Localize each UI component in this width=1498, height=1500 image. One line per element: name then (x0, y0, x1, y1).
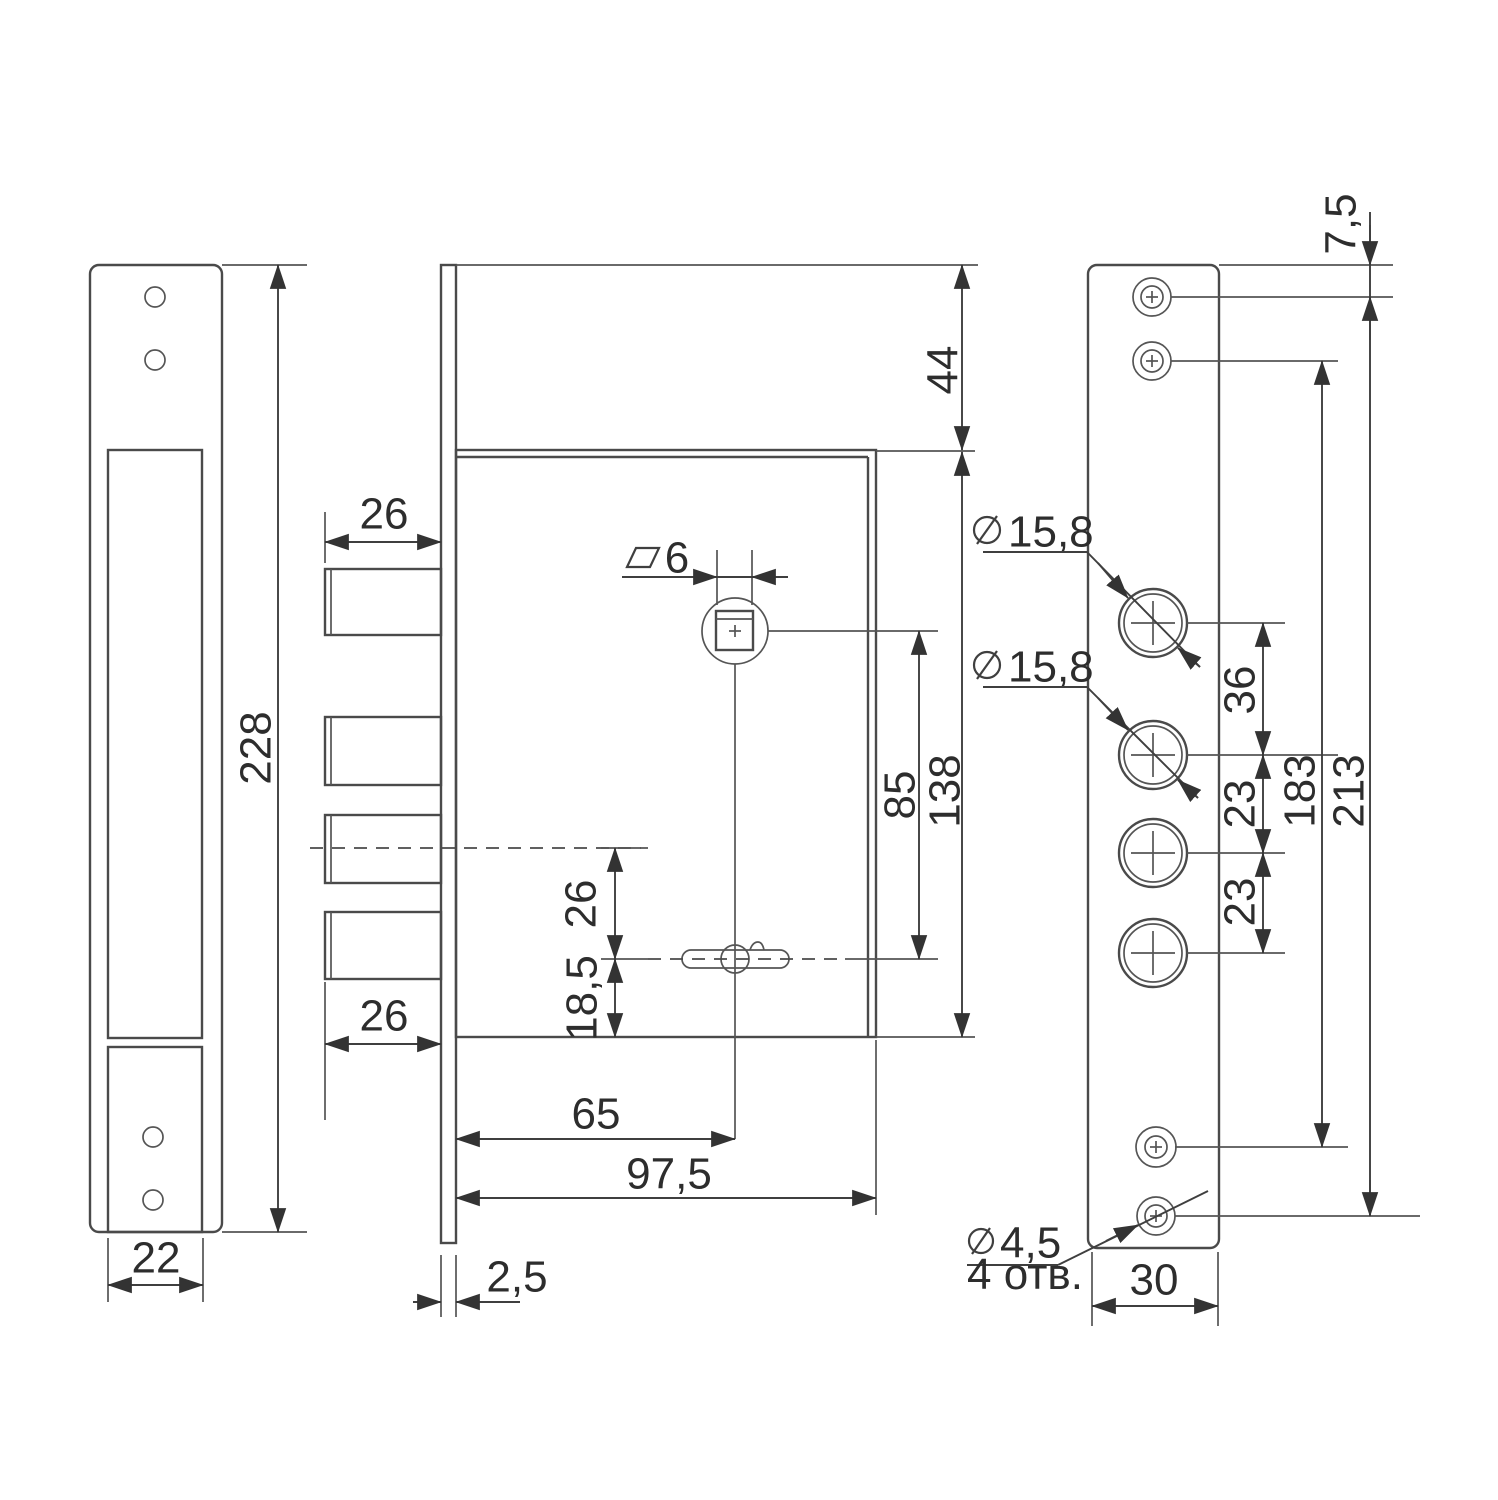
strike-hole-top-1 (145, 287, 165, 307)
dim-label-26-mid: 26 (557, 880, 606, 929)
cylinder-hole-4 (1119, 919, 1187, 987)
dim-hole-gap-mid: 23 (1216, 755, 1265, 853)
dim-screw-span: 183 (1276, 361, 1325, 1147)
strike-plate-slot (108, 450, 202, 1038)
dim-keyhole-to-bottom: 18,5 (558, 955, 616, 1041)
dim-label-2-5: 2,5 (486, 1253, 547, 1302)
screw-hole-top-2 (1133, 342, 1171, 380)
dim-faceplate-thickness: 2,5 (413, 1253, 548, 1318)
dim-label-36: 36 (1216, 666, 1265, 715)
screw-hole-bottom-1 (1136, 1127, 1176, 1167)
dim-body-depth: 97,5 (456, 1150, 876, 1199)
dim-bolt-width-bottom: 26 (325, 982, 441, 1120)
label-hole-count: 4 отв. (967, 1250, 1083, 1299)
dim-label-85: 85 (876, 771, 925, 820)
screw-hole-top-1 (1133, 278, 1171, 316)
cylinder-hole-2 (1119, 721, 1187, 789)
dim-strike-height: 228 (222, 265, 307, 1232)
spindle-hole (702, 598, 768, 664)
bolt-2 (325, 717, 441, 785)
dim-plate-width: 30 (1092, 1252, 1218, 1326)
square-section-symbol (627, 548, 659, 567)
dim-hole-gap-bottom: 23 (1216, 853, 1265, 953)
dim-top-screw-offset: 7,5 213 (1317, 193, 1374, 1216)
dim-spindle-square: 6 (622, 534, 788, 606)
bolt-3 (325, 815, 441, 883)
bolt-4 (325, 912, 441, 979)
dim-strike-width: 22 (108, 1234, 203, 1303)
dim-label-26-top: 26 (360, 490, 409, 539)
dim-center-to-keyhole: 26 (557, 848, 616, 959)
strike-hole-bottom-2 (143, 1190, 163, 1210)
dim-label-44: 44 (919, 346, 968, 395)
dim-label-30: 30 (1130, 1256, 1179, 1305)
dim-label-6: 6 (665, 534, 689, 583)
dim-label-138: 138 (921, 754, 970, 827)
dim-label-23-a: 23 (1216, 780, 1265, 829)
deadbolts (325, 569, 441, 979)
cylinder-hole-3 (1119, 819, 1187, 887)
dim-label-22: 22 (132, 1234, 181, 1283)
label-cylinder-dia-2: 15,8 (974, 643, 1198, 799)
dim-label-23-b: 23 (1216, 878, 1265, 927)
technical-drawing-canvas: 228 22 26 (0, 0, 1498, 1500)
dim-body-height: 138 (921, 452, 970, 1037)
faceplate-edge (441, 265, 456, 1243)
dim-label-65: 65 (572, 1090, 621, 1139)
lock-drawing: 228 22 26 (0, 0, 1498, 1500)
strike-hole-bottom-1 (143, 1127, 163, 1147)
dim-label-7-5: 7,5 (1317, 193, 1366, 254)
strike-hole-top-2 (145, 350, 165, 370)
dim-bolt-width-top: 26 (325, 490, 441, 564)
front-plate-view: 15,8 15,8 7,5 213 183 (967, 193, 1420, 1326)
strike-plate-lower-panel (108, 1047, 202, 1232)
dim-hole-gap-top: 36 (1216, 623, 1265, 755)
dim-label-15-8-b: 15,8 (1008, 643, 1094, 692)
dim-label-183: 183 (1276, 754, 1325, 827)
dim-label-26-bottom: 26 (360, 992, 409, 1041)
dim-label-228: 228 (232, 711, 281, 784)
dim-spindle-to-keyhole: 85 (876, 631, 925, 959)
dim-label-213: 213 (1325, 754, 1374, 827)
bolt-1 (325, 569, 441, 635)
dim-label-97-5: 97,5 (626, 1150, 712, 1199)
cylinder-hole-1 (1119, 589, 1187, 657)
dim-label-18-5: 18,5 (558, 955, 607, 1041)
dim-face-offset: 44 (919, 265, 968, 450)
strike-plate-view: 228 22 (90, 265, 307, 1302)
dim-backset: 65 (456, 1090, 735, 1140)
dim-label-15-8-a: 15,8 (1008, 508, 1094, 557)
lock-body-view: 26 26 6 (310, 265, 978, 1317)
